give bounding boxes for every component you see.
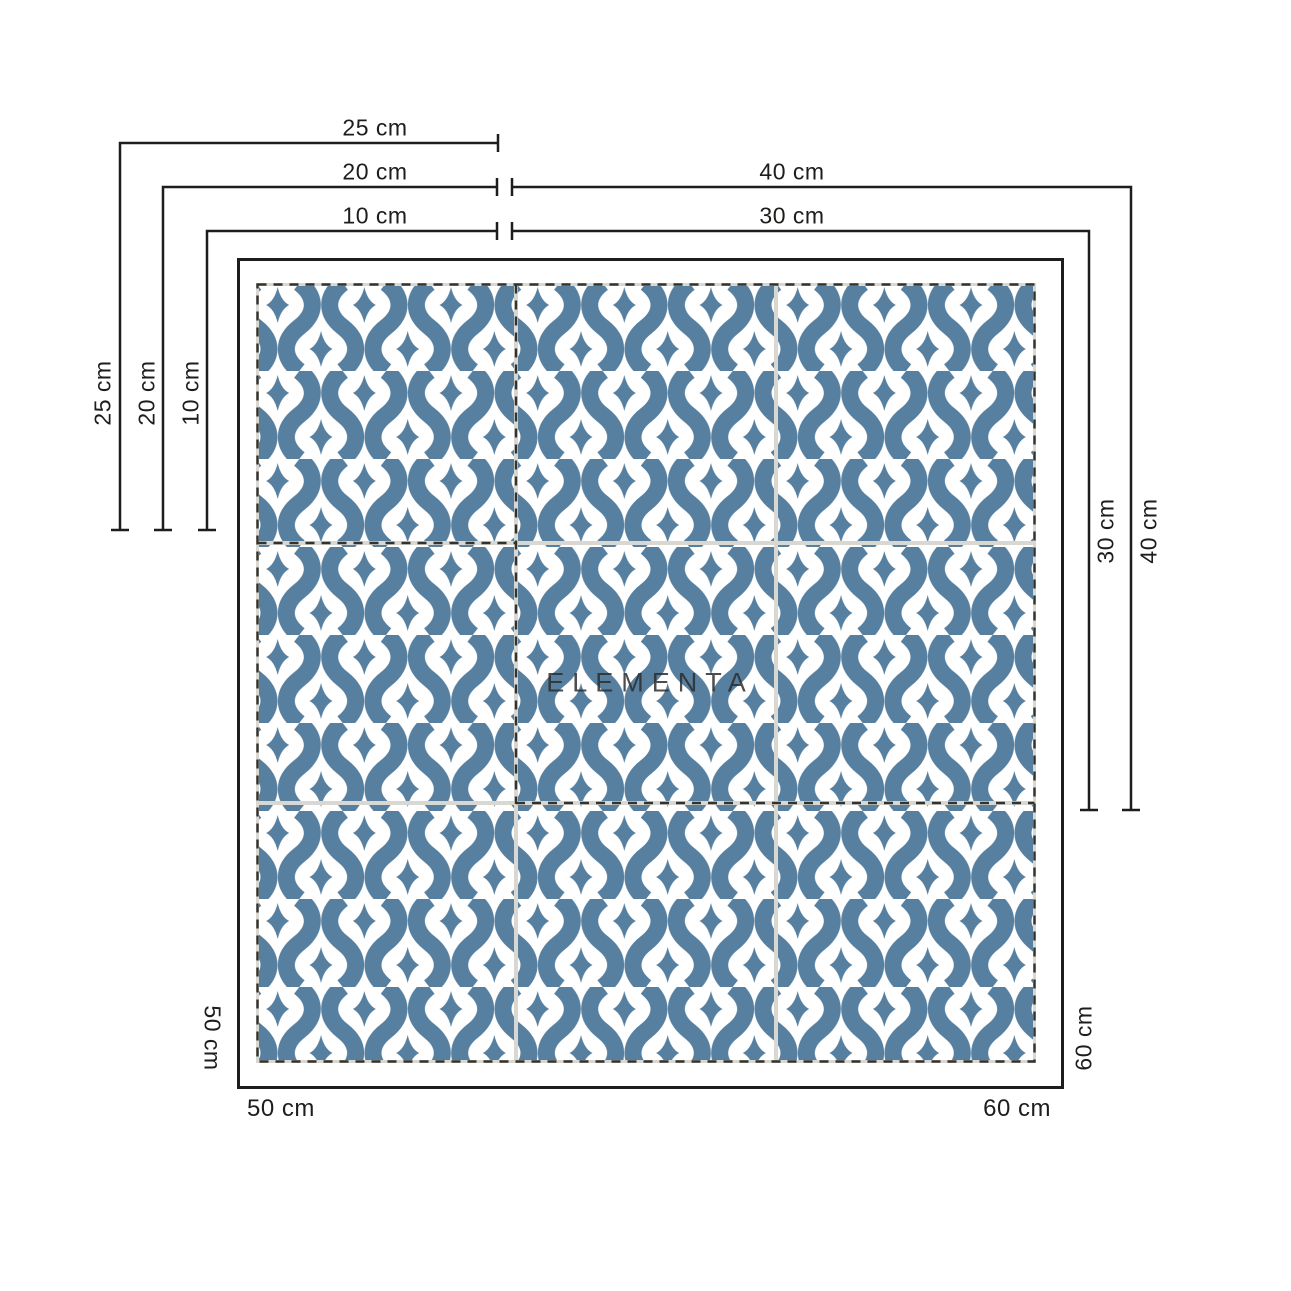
label-left-25cm: 25 cm <box>90 360 117 425</box>
label-right-30cm: 30 cm <box>1093 498 1120 563</box>
label-top-40cm: 40 cm <box>759 159 824 186</box>
dim-line-30cm <box>512 222 1098 810</box>
label-right-40cm: 40 cm <box>1136 498 1163 563</box>
tile-size-diagram: ELEMENTA <box>0 0 1291 1291</box>
dimension-lines-svg <box>0 0 1291 1291</box>
label-top-10cm: 10 cm <box>342 203 407 230</box>
label-bottom-60cm: 60 cm <box>983 1095 1051 1123</box>
label-side-60cm: 60 cm <box>1071 1005 1098 1070</box>
dim-line-25cm <box>111 134 498 530</box>
label-side-50cm: 50 cm <box>199 1005 226 1070</box>
dim-line-40cm <box>512 178 1140 810</box>
label-top-25cm: 25 cm <box>342 115 407 142</box>
label-left-10cm: 10 cm <box>178 360 205 425</box>
dim-line-10cm <box>198 222 497 530</box>
label-top-30cm: 30 cm <box>759 203 824 230</box>
label-left-20cm: 20 cm <box>134 360 161 425</box>
label-bottom-50cm: 50 cm <box>247 1095 315 1123</box>
label-top-20cm: 20 cm <box>342 159 407 186</box>
